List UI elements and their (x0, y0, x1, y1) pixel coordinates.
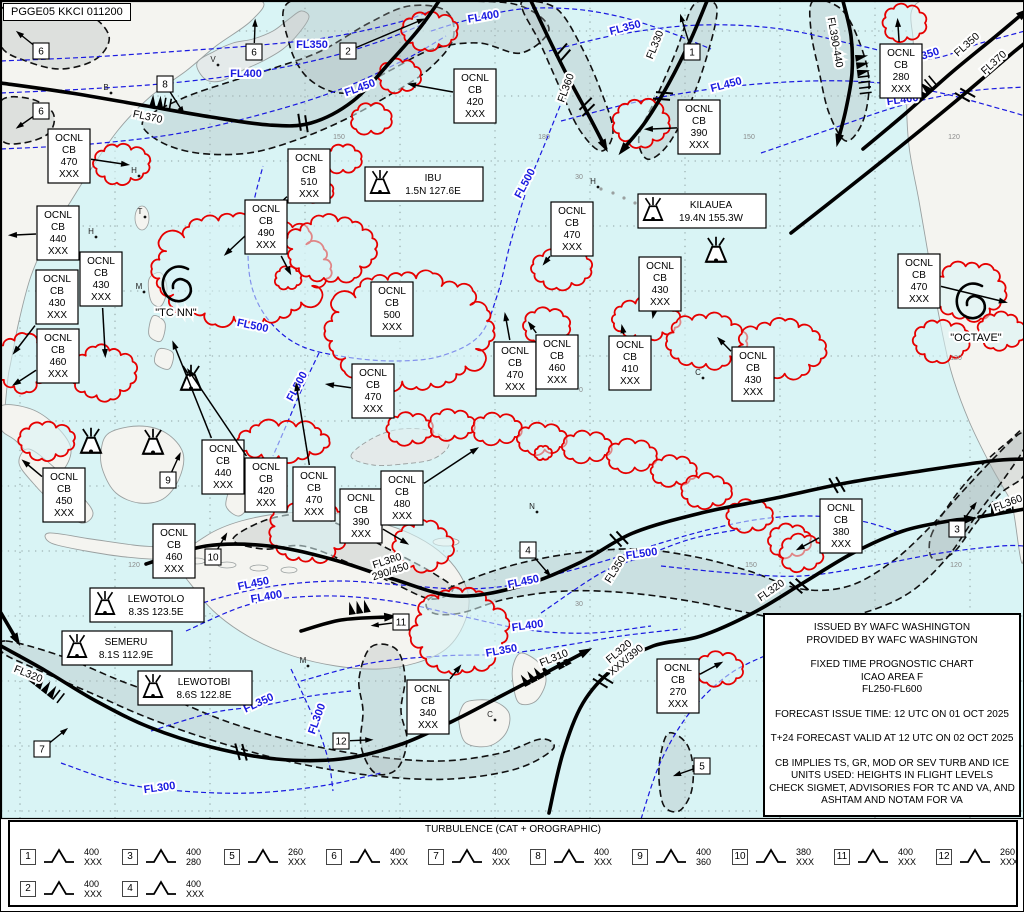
volcano-name: LEWOTOLO (128, 594, 185, 605)
info-panel-line (765, 721, 1019, 733)
volcano-dot (378, 190, 382, 194)
turbulence-symbol-path (44, 882, 74, 894)
cb-arrow-line (15, 234, 36, 235)
turbulence-symbol-icon (654, 846, 692, 868)
turbulence-symbol-path (858, 850, 888, 862)
turbulence-symbol-path (960, 850, 990, 862)
chart-header-id: PGGE05 KKCI 011200 (3, 3, 131, 21)
turbulence-symbol-icon (144, 846, 182, 868)
cb-top-level: 430 (49, 298, 66, 309)
marker-number: 1 (689, 48, 695, 59)
legend-item: 7400XXX (428, 844, 510, 870)
legend-base-level: XXX (84, 889, 102, 899)
marker-number: 6 (38, 47, 44, 58)
turbulence-symbol-icon (450, 846, 488, 868)
legend-top-level: 400 (898, 847, 916, 857)
legend-item-number: 4 (122, 881, 138, 897)
volcano-coordinates: 8.6S 122.8E (176, 690, 231, 701)
cb-occurrence: OCNL (887, 48, 915, 59)
cb-top-level: 470 (911, 282, 928, 293)
legend-top-level: 260 (288, 847, 306, 857)
cb-top-level: 270 (670, 687, 687, 698)
marker-number: 8 (162, 80, 168, 91)
cb-base-level: XXX (91, 292, 111, 303)
cb-occurrence: OCNL (616, 340, 644, 351)
cb-type: CB (167, 540, 181, 551)
cb-base-level: XXX (213, 480, 233, 491)
issuance-info-panel: ISSUED BY WAFC WASHINGTONPROVIDED BY WAF… (763, 613, 1021, 817)
cb-base-level: XXX (650, 297, 670, 308)
cb-type: CB (302, 165, 316, 176)
volcano-name: LEWOTOBI (178, 677, 231, 688)
legend-item-levels: 400XXX (390, 847, 408, 867)
cb-occurrence: OCNL (160, 528, 188, 539)
island-dot (622, 196, 625, 199)
legend-item-number: 3 (122, 849, 138, 865)
cb-top-level: 440 (215, 468, 232, 479)
cb-base-level: XXX (418, 720, 438, 731)
cb-occurrence: OCNL (646, 261, 674, 272)
volcano-dot (651, 217, 655, 221)
cb-occurrence: OCNL (55, 133, 83, 144)
cb-occurrence: OCNL (378, 286, 406, 297)
cyclone-name-label: "OCTAVE" (950, 332, 1002, 344)
island-dot (633, 201, 636, 204)
place-dot (144, 216, 147, 219)
cb-info-box: OCNLCB430XXX (639, 257, 681, 319)
cb-occurrence: OCNL (359, 368, 387, 379)
turbulence-symbol-icon (552, 846, 590, 868)
info-panel-line (765, 746, 1019, 758)
cb-type: CB (421, 696, 435, 707)
cb-type: CB (894, 60, 908, 71)
landmass (149, 316, 166, 342)
cb-occurrence: OCNL (347, 493, 375, 504)
volcano-name: KILAUEA (690, 200, 733, 211)
place-dot (702, 377, 705, 380)
info-panel-line: CB IMPLIES TS, GR, MOD OR SEV TURB AND I… (765, 758, 1019, 771)
cb-occurrence: OCNL (43, 274, 71, 285)
cb-type: CB (508, 358, 522, 369)
legend-top-level: 400 (696, 847, 711, 857)
volcano-dot (75, 654, 79, 658)
legend-item: 9400360 (632, 844, 711, 870)
cb-base-level: XXX (382, 322, 402, 333)
turbulence-symbol-path (656, 850, 686, 862)
jet-change-tick (656, 92, 673, 93)
legend-item: 2400XXX (20, 876, 102, 902)
turbulence-symbol-icon (246, 846, 284, 868)
turbulence-symbol-path (44, 850, 74, 862)
cb-type: CB (94, 268, 108, 279)
cb-base-level: XXX (620, 376, 640, 387)
marker-number: 10 (207, 553, 219, 564)
cb-occurrence: OCNL (295, 153, 323, 164)
cb-base-level: XXX (689, 140, 709, 151)
cb-base-level: XXX (547, 375, 567, 386)
cb-base-level: XXX (59, 169, 79, 180)
cb-base-level: XXX (909, 294, 929, 305)
turbulence-symbol-path (452, 850, 482, 862)
legend-base-level: XXX (288, 857, 306, 867)
legend-top-level: 380 (796, 847, 814, 857)
marker-number: 5 (699, 762, 705, 773)
sigwx-prog-chart: 15018015012030012015012012030BVHTHMHCNCM… (0, 0, 1024, 912)
volcano-dot (714, 259, 718, 263)
volcano-name: SEMERU (105, 637, 148, 648)
cb-top-level: 460 (166, 552, 183, 563)
legend-item-number: 9 (632, 849, 648, 865)
legend-item-levels: 400XXX (492, 847, 510, 867)
cb-base-level: XXX (164, 564, 184, 575)
cb-top-level: 480 (394, 499, 411, 510)
cb-info-box: OCNLCB500XXX (371, 282, 413, 336)
legend-item: 8400XXX (530, 844, 612, 870)
turbulence-symbol-icon (42, 878, 80, 900)
cb-occurrence: OCNL (209, 444, 237, 455)
legend-item: 1400XXX (20, 844, 102, 870)
legend-item: 4400XXX (122, 876, 204, 902)
legend-title: TURBULENCE (CAT + OROGRAPHIC) (10, 824, 1016, 835)
place-letter: H (131, 166, 137, 175)
cb-type: CB (550, 351, 564, 362)
legend-item-number: 10 (732, 849, 748, 865)
cb-occurrence: OCNL (388, 475, 416, 486)
turbulence-symbol-icon (42, 846, 80, 868)
legend-top-level: 400 (186, 879, 204, 889)
legend-item: 12260XXX (936, 844, 1018, 870)
turbulence-symbol-path (146, 850, 176, 862)
turbulence-symbol-icon (856, 846, 894, 868)
cb-type: CB (623, 352, 637, 363)
cb-type: CB (62, 145, 76, 156)
cb-top-level: 430 (93, 280, 110, 291)
legend-top-level: 400 (594, 847, 612, 857)
place-letter: H (590, 177, 596, 186)
marker-number: 9 (165, 476, 171, 487)
legend-item: 3400280 (122, 844, 201, 870)
cb-type: CB (216, 456, 230, 467)
cb-type: CB (468, 85, 482, 96)
place-letter: C (487, 710, 493, 719)
cb-cloud-outline (534, 446, 551, 460)
cb-type: CB (51, 222, 65, 233)
turbulence-symbol-path (554, 850, 584, 862)
contour-flight-level-label: FL350 (296, 39, 328, 51)
cb-top-level: 470 (507, 370, 524, 381)
cb-base-level: XXX (304, 507, 324, 518)
contour-flight-level-label: FL400 (230, 68, 262, 80)
cb-top-level: 430 (652, 285, 669, 296)
grid-coordinate-label: 150 (333, 134, 345, 141)
place-dot (217, 64, 220, 67)
island (250, 565, 268, 571)
cb-base-level: XXX (668, 699, 688, 710)
cb-base-level: XXX (465, 109, 485, 120)
info-panel-line: ASHTAM AND NOTAM FOR VA (765, 795, 1019, 808)
volcano-info-box: KILAUEA19.4N 155.3W (638, 194, 766, 228)
legend-item-levels: 400XXX (84, 879, 102, 899)
volcano-dot (103, 611, 107, 615)
legend-item: 10380XXX (732, 844, 814, 870)
cb-occurrence: OCNL (827, 503, 855, 514)
info-panel-line: T+24 FORECAST VALID AT 12 UTC ON 02 OCT … (765, 733, 1019, 746)
cb-top-level: 470 (365, 392, 382, 403)
turbulence-symbol-icon (144, 878, 182, 900)
marker-arrow-line (254, 25, 255, 43)
grid-coordinate-label: 120 (950, 562, 962, 569)
cyclone-name-label: "TC NN" (155, 307, 197, 319)
grid-coordinate-label: 30 (575, 174, 583, 181)
volcano-dot (89, 450, 93, 454)
cb-top-level: 430 (745, 375, 762, 386)
volcano-coordinates: 8.3S 123.5E (128, 607, 183, 618)
cb-type: CB (671, 675, 685, 686)
cb-occurrence: OCNL (501, 346, 529, 357)
grid-coordinate-label: 150 (743, 134, 755, 141)
legend-item-number: 5 (224, 849, 240, 865)
legend-base-level: XXX (492, 857, 510, 867)
grid-coordinate-label: 30 (575, 601, 583, 608)
cb-type: CB (354, 505, 368, 516)
legend-base-level: 360 (696, 857, 711, 867)
info-panel-line (765, 647, 1019, 659)
cb-base-level: XXX (505, 382, 525, 393)
grid-coordinate-label: 150 (745, 562, 757, 569)
place-letter: N (529, 502, 535, 511)
place-letter: H (88, 227, 94, 236)
legend-item: 5260XXX (224, 844, 306, 870)
volcano-info-box: LEWOTOLO8.3S 123.5E (90, 588, 204, 622)
cb-type: CB (653, 273, 667, 284)
volcano-coordinates: 19.4N 155.3W (679, 213, 743, 224)
cb-base-level: XXX (256, 240, 276, 251)
place-dot (307, 665, 310, 668)
legend-top-level: 260 (1000, 847, 1018, 857)
legend-base-level: XXX (796, 857, 814, 867)
cb-occurrence: OCNL (558, 206, 586, 217)
legend-top-level: 400 (84, 879, 102, 889)
info-panel-line: PROVIDED BY WAFC WASHINGTON (765, 635, 1019, 648)
info-panel-line: CHECK SIGMET, ADVISORIES FOR TC AND VA, … (765, 783, 1019, 796)
cb-type: CB (259, 216, 273, 227)
cb-top-level: 510 (301, 177, 318, 188)
island (281, 567, 297, 573)
grid-coordinate-label: 120 (950, 355, 962, 362)
cb-top-level: 280 (893, 72, 910, 83)
cb-top-level: 390 (353, 517, 370, 528)
legend-item-number: 2 (20, 881, 36, 897)
cb-occurrence: OCNL (44, 210, 72, 221)
turbulence-symbol-path (248, 850, 278, 862)
cb-type: CB (259, 474, 273, 485)
cb-occurrence: OCNL (905, 258, 933, 269)
marker-number: 4 (525, 546, 531, 557)
cb-occurrence: OCNL (252, 462, 280, 473)
cb-type: CB (395, 487, 409, 498)
place-dot (143, 291, 146, 294)
cb-top-level: 340 (420, 708, 437, 719)
legend-base-level: XXX (186, 889, 204, 899)
cb-top-level: 470 (61, 157, 78, 168)
cb-occurrence: OCNL (543, 339, 571, 350)
marker-number: 12 (335, 737, 347, 748)
grid-coordinate-label: 120 (128, 562, 140, 569)
marker-number: 6 (38, 107, 44, 118)
legend-base-level: XXX (390, 857, 408, 867)
cb-top-level: 420 (467, 97, 484, 108)
cb-info-box: OCNLCB460XXX (153, 524, 195, 578)
place-letter: B (103, 83, 108, 92)
cb-top-level: 500 (384, 310, 401, 321)
turbulence-symbol-path (350, 850, 380, 862)
cb-base-level: XXX (299, 189, 319, 200)
turbulence-symbol-icon (348, 846, 386, 868)
legend-item-number: 8 (530, 849, 546, 865)
island-dot (611, 191, 614, 194)
place-letter: T (138, 207, 143, 216)
place-dot (110, 92, 113, 95)
cb-occurrence: OCNL (685, 104, 713, 115)
legend-base-level: XXX (1000, 857, 1018, 867)
cb-base-level: XXX (831, 539, 851, 550)
info-panel-line: FL250-FL600 (765, 684, 1019, 697)
place-dot (138, 175, 141, 178)
legend-top-level: 400 (492, 847, 510, 857)
place-dot (494, 719, 497, 722)
info-panel-line (765, 697, 1019, 709)
legend-item-levels: 260XXX (288, 847, 306, 867)
cb-base-level: XXX (743, 387, 763, 398)
cb-type: CB (565, 218, 579, 229)
cb-base-level: XXX (392, 511, 412, 522)
volcano-info-box: IBU1.5N 127.6E (365, 167, 483, 201)
legend-item-levels: 400XXX (898, 847, 916, 867)
info-panel-line: FIXED TIME PROGNOSTIC CHART (765, 659, 1019, 672)
cb-type: CB (746, 363, 760, 374)
cb-occurrence: OCNL (252, 204, 280, 215)
place-letter: M (300, 656, 307, 665)
info-panel-line: ISSUED BY WAFC WASHINGTON (765, 622, 1019, 635)
cb-top-level: 470 (306, 495, 323, 506)
cb-base-level: XXX (351, 529, 371, 540)
marker-number: 2 (345, 47, 351, 58)
jet-change-tick (653, 99, 670, 100)
legend-item-number: 11 (834, 849, 850, 865)
grid-coordinate-label: 120 (948, 134, 960, 141)
legend-item-number: 12 (936, 849, 952, 865)
cb-top-level: 390 (691, 128, 708, 139)
marker-number: 6 (251, 48, 257, 59)
turbulence-symbol-icon (958, 846, 996, 868)
cb-base-level: XXX (891, 84, 911, 95)
place-letter: V (210, 55, 216, 64)
cb-top-level: 410 (622, 364, 639, 375)
legend-base-level: XXX (594, 857, 612, 867)
cb-occurrence: OCNL (44, 333, 72, 344)
cb-type: CB (385, 298, 399, 309)
legend-top-level: 400 (390, 847, 408, 857)
legend-base-level: XXX (84, 857, 102, 867)
cb-top-level: 460 (50, 357, 67, 368)
cb-type: CB (51, 345, 65, 356)
cb-occurrence: OCNL (300, 471, 328, 482)
legend-item-levels: 400280 (186, 847, 201, 867)
turbulence-symbol-icon (754, 846, 792, 868)
cb-top-level: 470 (564, 230, 581, 241)
cb-type: CB (692, 116, 706, 127)
legend-item-number: 7 (428, 849, 444, 865)
legend-item-levels: 400360 (696, 847, 711, 867)
legend-top-level: 400 (84, 847, 102, 857)
cb-type: CB (57, 484, 71, 495)
legend-item-number: 6 (326, 849, 342, 865)
cb-base-level: XXX (48, 246, 68, 257)
grid-coordinate-label: 0 (579, 387, 583, 394)
legend-item: 11400XXX (834, 844, 916, 870)
info-panel-line: UNITS USED: HEIGHTS IN FLIGHT LEVELS (765, 770, 1019, 783)
cb-top-level: 380 (833, 527, 850, 538)
marker-number: 7 (39, 745, 45, 756)
turbulence-symbol-path (756, 850, 786, 862)
legend-item-levels: 380XXX (796, 847, 814, 867)
cb-base-level: XXX (256, 498, 276, 509)
legend-item-levels: 400XXX (186, 879, 204, 899)
cb-type: CB (366, 380, 380, 391)
cb-type: CB (912, 270, 926, 281)
cb-base-level: XXX (54, 508, 74, 519)
cb-base-level: XXX (363, 404, 383, 415)
legend-base-level: 280 (186, 857, 201, 867)
cb-base-level: XXX (48, 369, 68, 380)
volcano-name: IBU (425, 173, 442, 184)
cb-top-level: 440 (50, 234, 67, 245)
cb-top-level: 420 (258, 486, 275, 497)
cb-occurrence: OCNL (414, 684, 442, 695)
volcano-info-box: SEMERU8.1S 112.9E (62, 631, 172, 665)
legend-item-levels: 400XXX (84, 847, 102, 867)
volcano-info-box: LEWOTOBI8.6S 122.8E (138, 671, 252, 705)
turbulence-symbol-path (146, 882, 176, 894)
cb-occurrence: OCNL (664, 663, 692, 674)
cb-occurrence: OCNL (50, 472, 78, 483)
cb-type: CB (307, 483, 321, 494)
cb-top-level: 450 (56, 496, 73, 507)
cb-top-level: 460 (549, 363, 566, 374)
place-dot (536, 511, 539, 514)
marker-number: 11 (396, 618, 407, 629)
cb-occurrence: OCNL (87, 256, 115, 267)
place-dot (597, 186, 600, 189)
legend-item-levels: 260XXX (1000, 847, 1018, 867)
legend-base-level: XXX (898, 857, 916, 867)
legend-item-number: 1 (20, 849, 36, 865)
cb-base-level: XXX (562, 242, 582, 253)
legend-item: 6400XXX (326, 844, 408, 870)
cb-occurrence: OCNL (739, 351, 767, 362)
place-dot (95, 236, 98, 239)
cb-type: CB (50, 286, 64, 297)
info-panel-line: FORECAST ISSUE TIME: 12 UTC ON 01 OCT 20… (765, 709, 1019, 722)
marker-arrow-line (350, 740, 367, 741)
place-letter: C (695, 368, 701, 377)
info-panel-line: ICAO AREA F (765, 672, 1019, 685)
cb-top-level: 490 (258, 228, 275, 239)
volcano-coordinates: 8.1S 112.9E (99, 650, 154, 661)
cb-base-level: XXX (47, 310, 67, 321)
place-letter: M (136, 282, 143, 291)
cb-type: CB (834, 515, 848, 526)
